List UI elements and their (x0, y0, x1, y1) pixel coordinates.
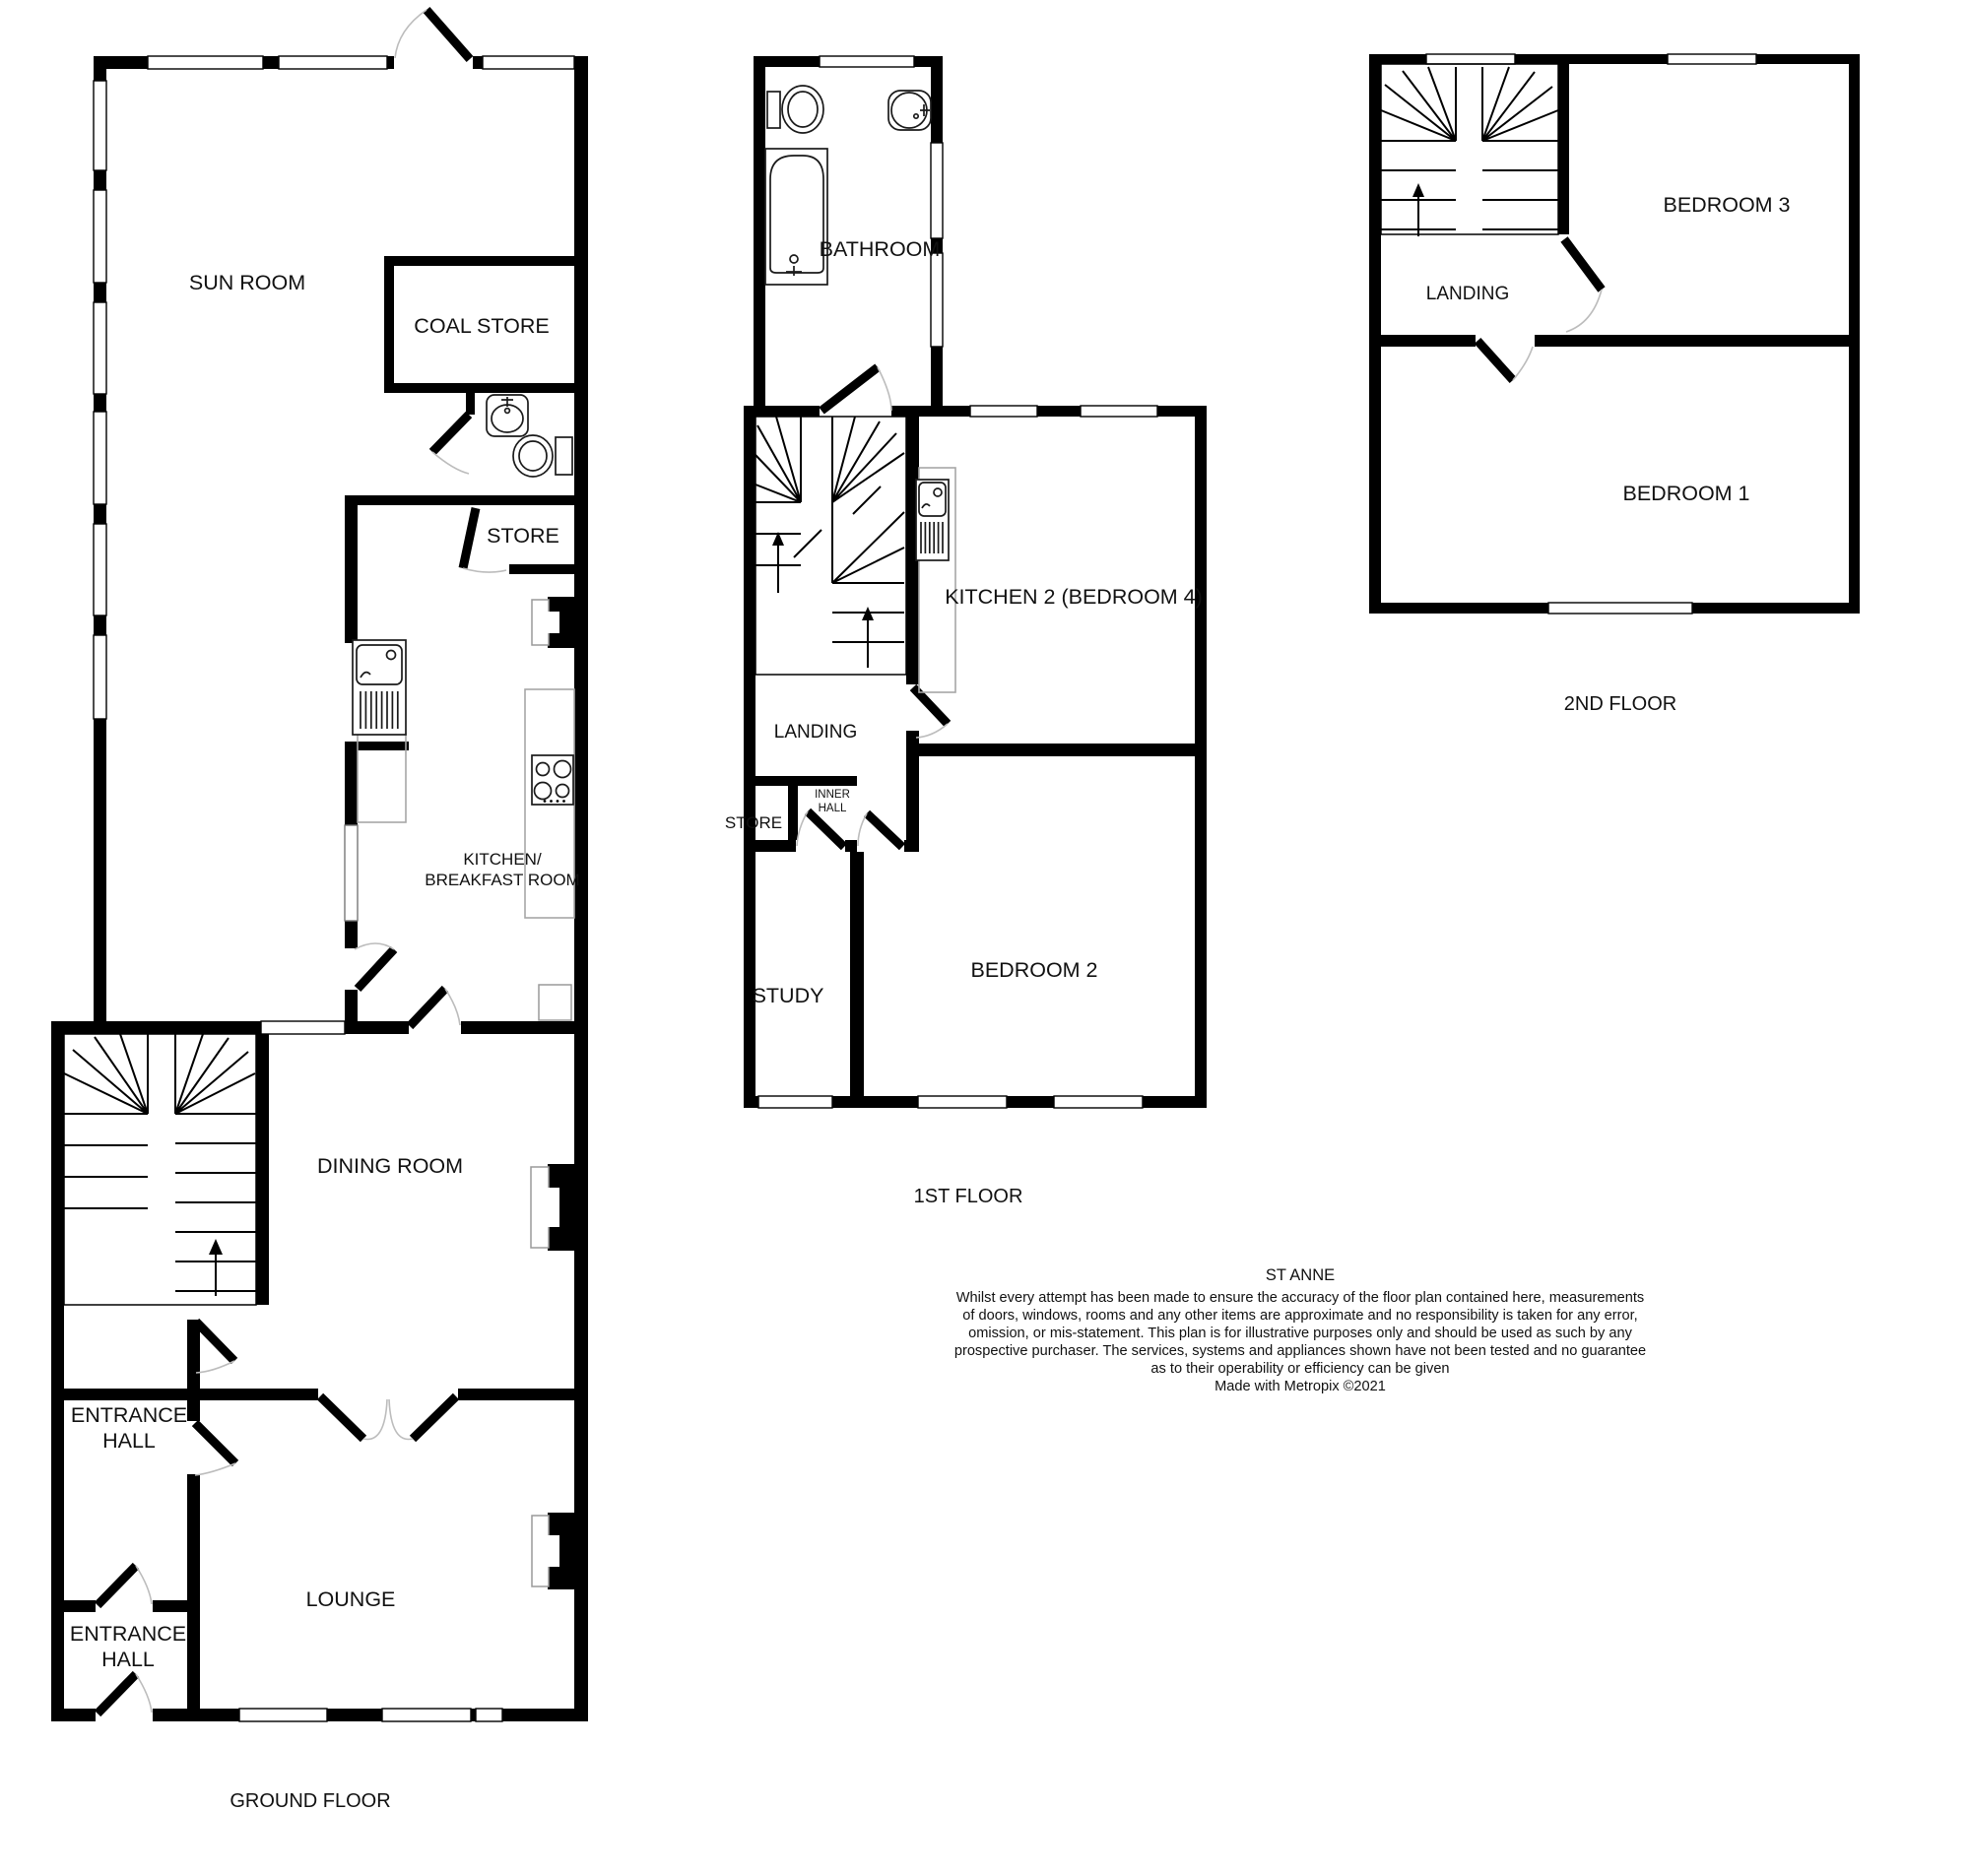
room-label-bedroom-2: BEDROOM 2 (970, 958, 1097, 982)
fireplace-icon-lounge (532, 1513, 574, 1589)
floorplan-drawing: SUN ROOM COAL STORE STORE KITCHEN/ BREAK… (0, 0, 1970, 1876)
second-floor-labels: BEDROOM 3 LANDING BEDROOM 1 2ND FLOOR (1426, 193, 1791, 715)
bathroom-toilet-icon (767, 86, 823, 133)
room-label-bathroom: BATHROOM (820, 237, 941, 261)
second-floor-walls (1369, 54, 1860, 614)
bathroom-sink-icon (888, 91, 931, 130)
bath-icon (765, 149, 827, 285)
room-label-lounge: LOUNGE (306, 1587, 396, 1611)
room-label-coal-store: COAL STORE (414, 314, 549, 338)
property-name-label: ST ANNE (1266, 1266, 1335, 1284)
plan-notes: ST ANNE Whilst every attempt has been ma… (954, 1266, 1646, 1394)
kitchen2-sink-icon (916, 480, 949, 560)
room-label-kitchen-breakfast-line1: KITCHEN/ (463, 850, 542, 869)
room-label-entrance-hall-2-line1: ENTRANCE (70, 1622, 186, 1646)
room-label-sun-room: SUN ROOM (189, 271, 305, 294)
ground-floor-door-gaps (96, 56, 473, 1721)
second-floor-plan: BEDROOM 3 LANDING BEDROOM 1 2ND FLOOR (1369, 54, 1860, 715)
floorplan-page: SUN ROOM COAL STORE STORE KITCHEN/ BREAK… (0, 0, 1970, 1876)
room-label-entrance-hall-1-line1: ENTRANCE (71, 1403, 187, 1427)
wc-sink-icon (487, 395, 528, 436)
disclaimer-line-1: Whilst every attempt has been made to en… (956, 1290, 1644, 1306)
room-label-store-first: STORE (725, 813, 782, 832)
second-floor-doors (1477, 239, 1602, 380)
staircase-second (1381, 64, 1558, 236)
first-floor-doors (797, 367, 948, 847)
disclaimer-line-2: of doors, windows, rooms and any other i… (962, 1308, 1637, 1324)
hob-icon (532, 755, 573, 805)
ground-floor-plan: SUN ROOM COAL STORE STORE KITCHEN/ BREAK… (51, 10, 588, 1812)
room-label-entrance-hall-1-line2: HALL (102, 1429, 156, 1453)
first-floor-labels: BATHROOM KITCHEN 2 (BEDROOM 4) LANDING I… (725, 237, 1203, 1207)
room-label-bedroom-3: BEDROOM 3 (1663, 193, 1790, 217)
wc-toilet-icon (513, 435, 572, 477)
room-label-study: STUDY (753, 984, 824, 1007)
disclaimer-line-5: as to their operability or efficiency ca… (1150, 1361, 1449, 1377)
room-label-dining-room: DINING ROOM (317, 1154, 463, 1178)
metropix-credit: Made with Metropix ©2021 (1215, 1379, 1386, 1394)
disclaimer-line-3: omission, or mis-statement. This plan is… (968, 1326, 1633, 1341)
room-label-inner-hall-line2: HALL (819, 803, 847, 814)
fireplace-icon-kitchen (532, 597, 574, 648)
room-label-landing-second: LANDING (1426, 284, 1509, 304)
kitchen-sink-icon (353, 640, 406, 735)
first-floor-plan: BATHROOM KITCHEN 2 (BEDROOM 4) LANDING I… (725, 56, 1207, 1207)
room-label-bedroom-1: BEDROOM 1 (1622, 482, 1749, 505)
staircase-ground (64, 1034, 256, 1305)
room-label-entrance-hall-2-line2: HALL (101, 1648, 155, 1671)
floor-title-second: 2ND FLOOR (1564, 693, 1676, 715)
room-label-landing-first: LANDING (774, 722, 857, 743)
room-label-kitchen-breakfast-line2: BREAKFAST ROOM (425, 871, 579, 889)
disclaimer-line-4: prospective purchaser. The services, sys… (954, 1343, 1646, 1359)
room-label-kitchen-2: KITCHEN 2 (BEDROOM 4) (945, 585, 1203, 609)
room-label-inner-hall-line1: INNER (815, 789, 850, 801)
fireplace-icon-dining (531, 1164, 574, 1251)
staircase-first (755, 417, 906, 675)
room-label-store-ground: STORE (487, 524, 559, 548)
first-floor-fixtures (765, 86, 955, 692)
cupboard (539, 985, 571, 1020)
floor-title-ground: GROUND FLOOR (230, 1790, 390, 1812)
second-floor-windows (1426, 54, 1756, 614)
floor-title-first: 1ST FLOOR (914, 1186, 1023, 1207)
